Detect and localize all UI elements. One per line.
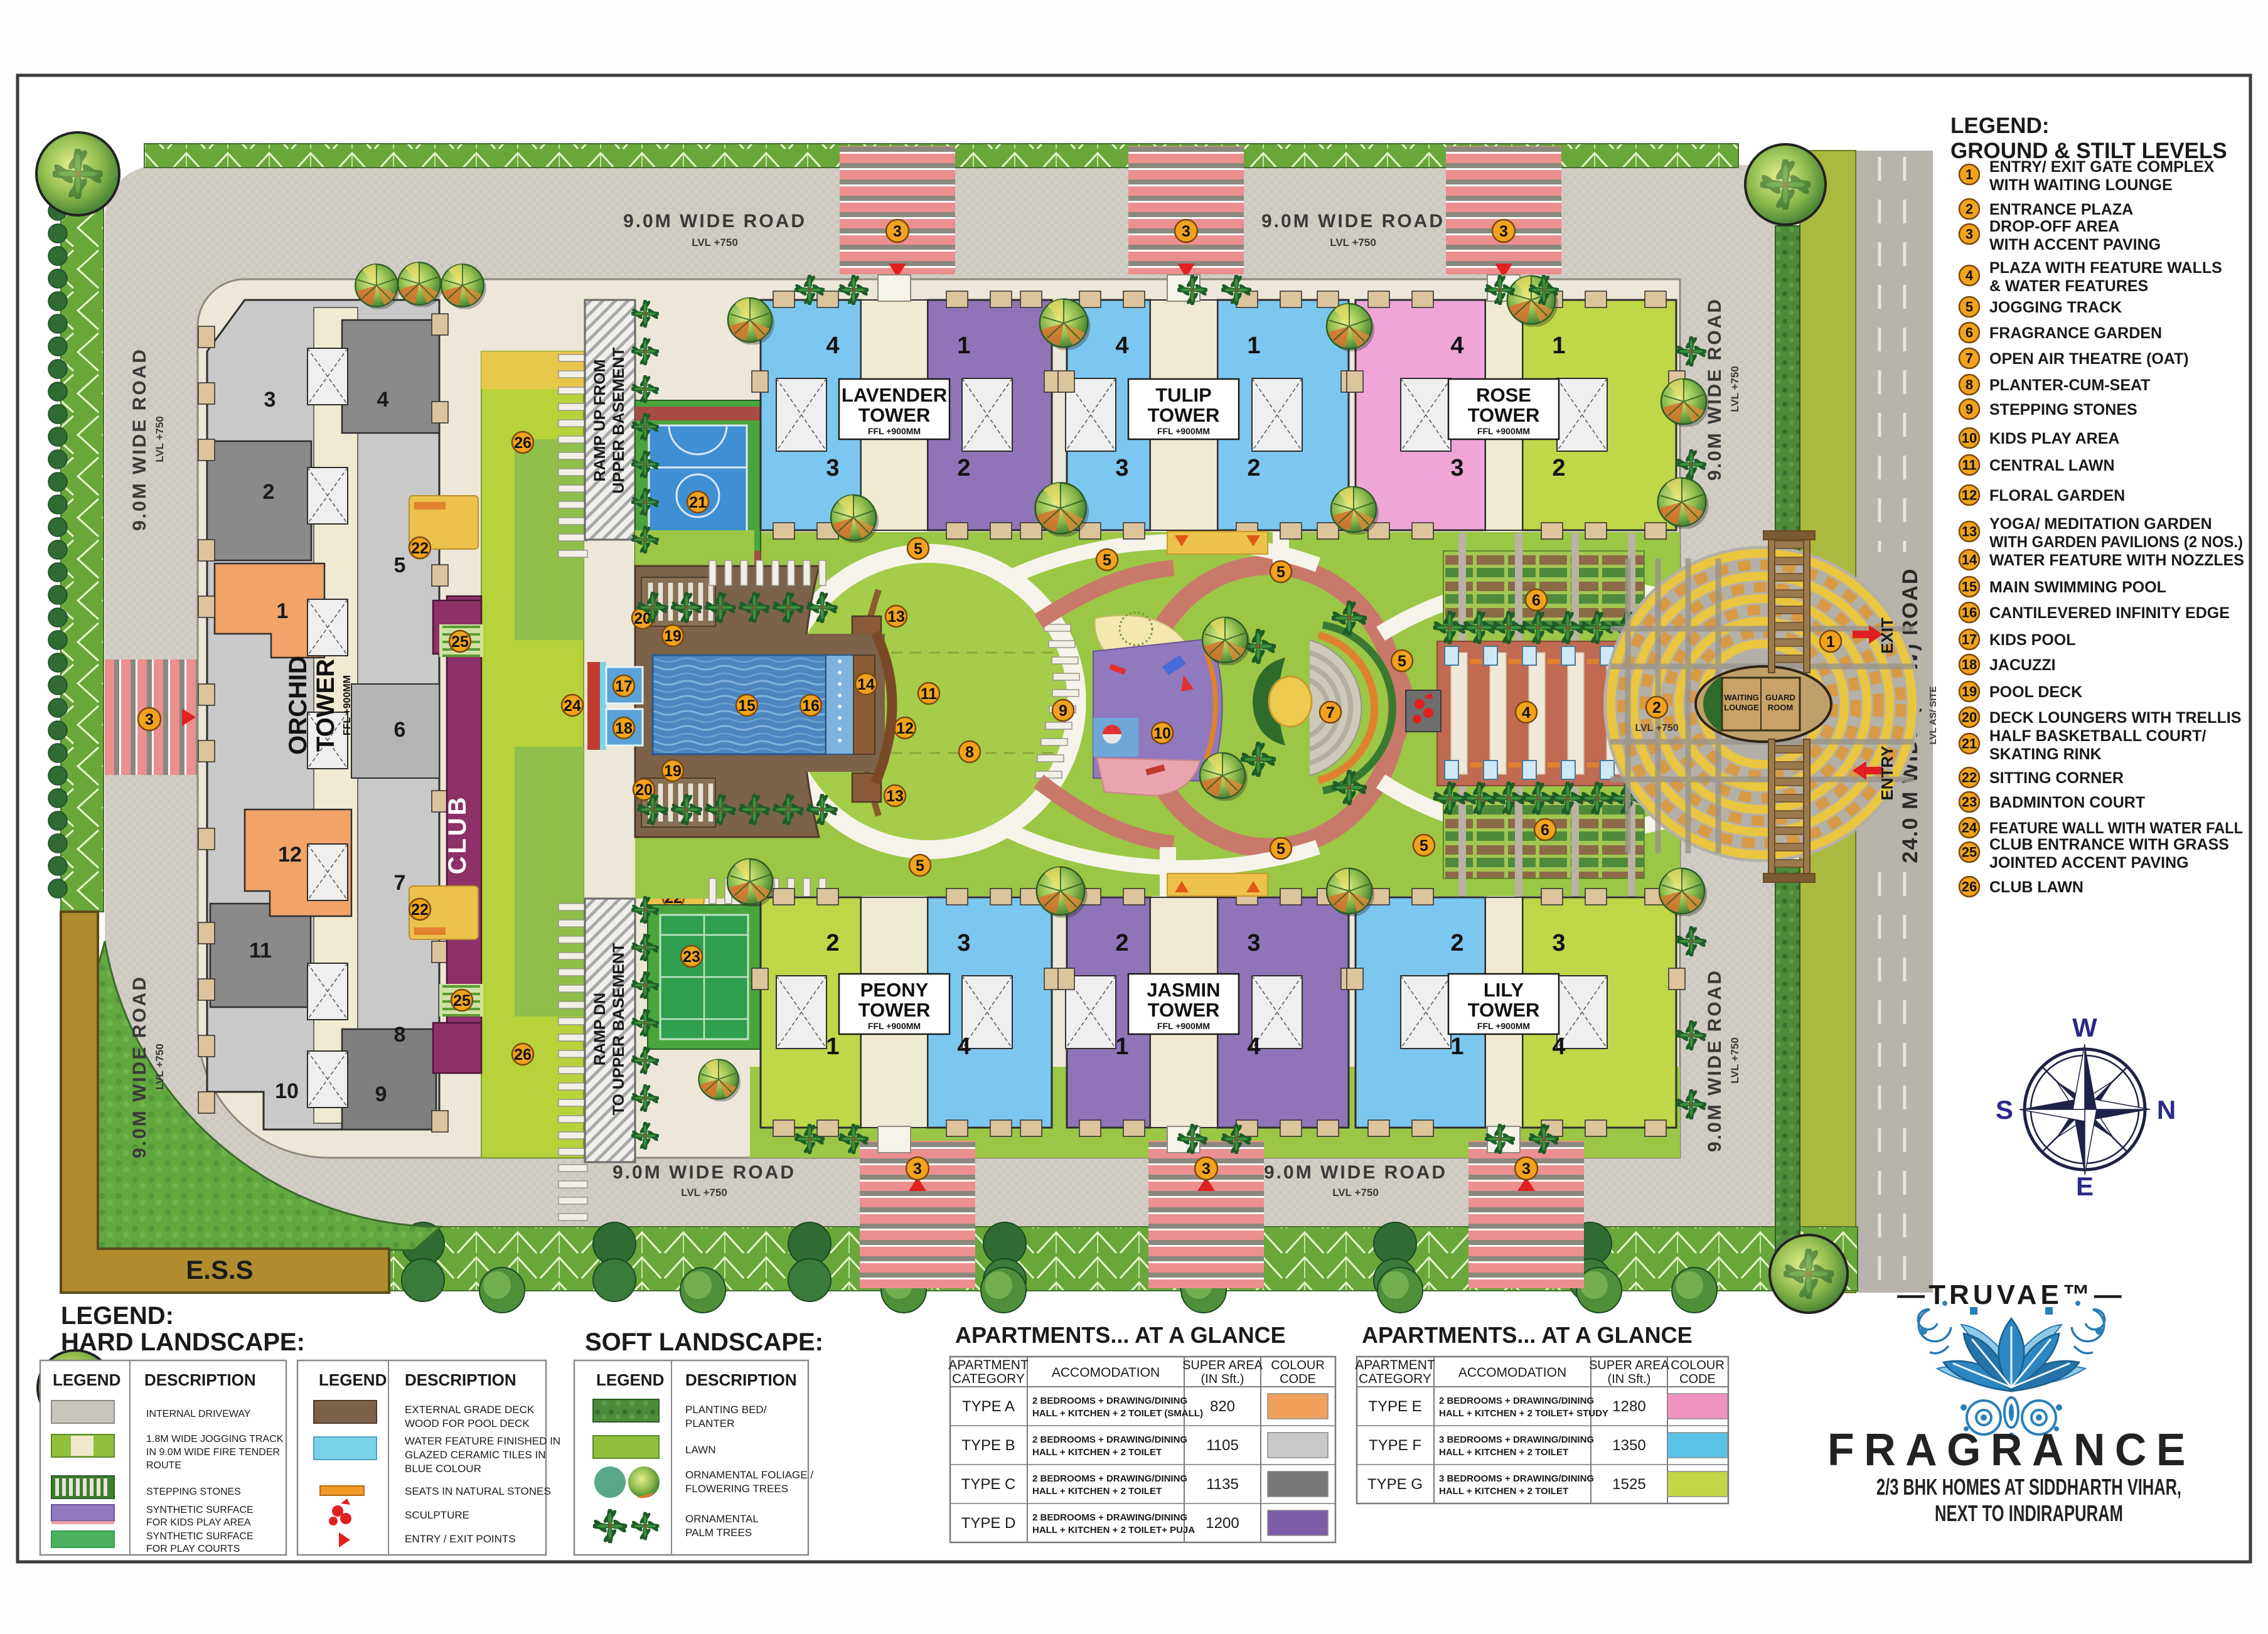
svg-text:ENTRY / EXIT POINTS: ENTRY / EXIT POINTS	[405, 1533, 516, 1545]
svg-text:TYPE G: TYPE G	[1367, 1476, 1423, 1493]
svg-text:HALL + KITCHEN + 2 TOILET+ PUJ: HALL + KITCHEN + 2 TOILET+ PUJA	[1032, 1525, 1195, 1535]
svg-text:2 BEDROOMS + DRAWING/DINING: 2 BEDROOMS + DRAWING/DINING	[1032, 1512, 1187, 1523]
svg-text:FOR PLAY COURTS: FOR PLAY COURTS	[146, 1544, 240, 1554]
svg-text:25: 25	[453, 992, 471, 1010]
svg-text:WATER FEATURE WITH NOZZLES: WATER FEATURE WITH NOZZLES	[1989, 552, 2244, 569]
svg-text:3: 3	[1499, 223, 1508, 240]
svg-text:4: 4	[1966, 268, 1974, 284]
svg-text:16: 16	[802, 697, 820, 715]
svg-text:WATER FEATURE FINISHED IN: WATER FEATURE FINISHED IN	[405, 1435, 560, 1447]
svg-text:5: 5	[1398, 653, 1406, 670]
svg-text:1: 1	[1826, 633, 1835, 651]
svg-text:9.0M WIDE ROAD: 9.0M WIDE ROAD	[129, 975, 150, 1158]
svg-text:11: 11	[1962, 457, 1976, 473]
svg-text:(IN Sft.): (IN Sft.)	[1608, 1372, 1651, 1386]
svg-text:TYPE E: TYPE E	[1368, 1398, 1421, 1415]
svg-text:23: 23	[1962, 794, 1977, 810]
svg-text:13: 13	[887, 608, 905, 626]
svg-text:EXIT: EXIT	[1878, 617, 1896, 654]
svg-text:JOINTED ACCENT PAVING: JOINTED ACCENT PAVING	[1989, 854, 2189, 872]
svg-text:4: 4	[1450, 333, 1463, 359]
svg-text:3: 3	[1450, 455, 1463, 481]
svg-text:HALF BASKETBALL COURT/: HALF BASKETBALL COURT/	[1989, 727, 2206, 745]
svg-text:3: 3	[264, 388, 276, 412]
svg-text:WOOD FOR POOL DECK: WOOD FOR POOL DECK	[405, 1418, 530, 1429]
svg-text:LVL +750: LVL +750	[692, 237, 738, 248]
svg-text:12: 12	[1962, 488, 1977, 503]
svg-text:1200: 1200	[1206, 1515, 1239, 1532]
svg-text:FFL +900MM: FFL +900MM	[1157, 1021, 1210, 1031]
svg-text:18: 18	[615, 720, 633, 737]
svg-text:GLAZED CERAMIC TILES IN: GLAZED CERAMIC TILES IN	[405, 1449, 546, 1461]
svg-text:S: S	[1996, 1095, 2013, 1124]
svg-text:SOFT LANDSCAPE:: SOFT LANDSCAPE:	[585, 1328, 823, 1356]
svg-text:TULIP: TULIP	[1155, 384, 1212, 406]
svg-text:2: 2	[826, 930, 839, 956]
svg-text:2: 2	[1966, 201, 1973, 217]
svg-text:22: 22	[1962, 770, 1977, 786]
svg-text:ROSE: ROSE	[1476, 384, 1531, 406]
svg-text:LAVENDER: LAVENDER	[842, 384, 947, 406]
svg-text:25: 25	[451, 633, 469, 651]
svg-text:CATEGORY: CATEGORY	[1359, 1372, 1431, 1386]
svg-text:2: 2	[957, 455, 970, 481]
svg-text:3: 3	[826, 455, 839, 481]
svg-text:2: 2	[1450, 930, 1463, 956]
svg-text:LVL AS/ SITE: LVL AS/ SITE	[1928, 686, 1939, 744]
svg-text:3: 3	[913, 1160, 922, 1178]
svg-text:HALL + KITCHEN + 2 TOILET: HALL + KITCHEN + 2 TOILET	[1032, 1486, 1162, 1497]
svg-text:ROOM: ROOM	[1768, 703, 1793, 712]
svg-text:5: 5	[394, 553, 406, 577]
svg-text:CANTILEVERED INFINITY EDGE: CANTILEVERED INFINITY EDGE	[1989, 604, 2230, 622]
svg-text:4: 4	[826, 333, 839, 359]
svg-text:HARD LANDSCAPE:: HARD LANDSCAPE:	[61, 1328, 305, 1356]
svg-text:12: 12	[896, 720, 914, 737]
svg-text:8: 8	[394, 1023, 406, 1047]
svg-text:10: 10	[1153, 725, 1171, 742]
svg-text:7: 7	[1966, 351, 1973, 366]
svg-text:NEXT TO INDIRAPURAM: NEXT TO INDIRAPURAM	[1935, 1500, 2123, 1526]
svg-text:MAIN SWIMMING POOL: MAIN SWIMMING POOL	[1989, 579, 2166, 596]
svg-text:2: 2	[1652, 699, 1661, 717]
svg-text:2/3 BHK HOMES AT SIDDHARTH VIH: 2/3 BHK HOMES AT SIDDHARTH VIHAR,	[1876, 1474, 2181, 1500]
svg-text:4: 4	[1522, 704, 1531, 722]
svg-text:4: 4	[1552, 1033, 1565, 1060]
svg-text:APARTMENTS... AT A GLANCE: APARTMENTS... AT A GLANCE	[1362, 1322, 1693, 1348]
svg-text:ENTRANCE PLAZA: ENTRANCE PLAZA	[1989, 201, 2133, 218]
svg-text:TOWER: TOWER	[1148, 404, 1220, 426]
svg-text:GUARD: GUARD	[1765, 693, 1795, 702]
svg-text:20: 20	[635, 781, 653, 799]
svg-text:1: 1	[1247, 333, 1260, 359]
svg-text:ORCHID: ORCHID	[284, 656, 312, 755]
svg-text:19: 19	[664, 627, 682, 645]
svg-text:8: 8	[965, 744, 974, 761]
svg-text:ORNAMENTAL FOLIAGE /: ORNAMENTAL FOLIAGE /	[685, 1469, 813, 1481]
svg-text:1525: 1525	[1612, 1476, 1645, 1493]
svg-text:FFL +900MM: FFL +900MM	[1157, 426, 1210, 436]
svg-text:9.0M WIDE ROAD: 9.0M WIDE ROAD	[1261, 211, 1445, 232]
svg-text:E.S.S: E.S.S	[186, 1255, 253, 1284]
svg-text:POOL DECK: POOL DECK	[1989, 683, 2082, 701]
svg-text:1105: 1105	[1206, 1437, 1239, 1454]
svg-text:TYPE F: TYPE F	[1369, 1437, 1421, 1454]
svg-text:4: 4	[1115, 333, 1128, 359]
svg-text:ENTRY/ EXIT GATE COMPLEX: ENTRY/ EXIT GATE COMPLEX	[1989, 158, 2215, 176]
svg-text:9: 9	[1966, 402, 1973, 417]
svg-text:WITH GARDEN PAVILIONS (2 NOS.): WITH GARDEN PAVILIONS (2 NOS.)	[1989, 533, 2243, 551]
svg-text:LVL +750: LVL +750	[1330, 237, 1376, 248]
svg-text:CENTRAL LAWN: CENTRAL LAWN	[1989, 457, 2115, 474]
svg-text:FRAGRANCE: FRAGRANCE	[1827, 1425, 2195, 1475]
svg-text:SUPER AREA: SUPER AREA	[1182, 1359, 1263, 1372]
svg-text:LVL +750: LVL +750	[1729, 366, 1741, 412]
svg-text:STEPPING STONES: STEPPING STONES	[146, 1487, 241, 1497]
svg-text:FFL +900MM: FFL +900MM	[342, 675, 353, 735]
svg-text:9.0M WIDE ROAD: 9.0M WIDE ROAD	[1264, 1162, 1447, 1183]
svg-text:TOWER: TOWER	[1148, 999, 1220, 1021]
svg-text:26: 26	[514, 1046, 532, 1064]
svg-text:14: 14	[1962, 552, 1977, 568]
svg-text:STEPPING STONES: STEPPING STONES	[1989, 401, 2137, 419]
svg-text:WITH WAITING LOUNGE: WITH WAITING LOUNGE	[1989, 176, 2173, 194]
svg-text:(IN Sft.): (IN Sft.)	[1201, 1372, 1244, 1386]
svg-text:E: E	[2076, 1172, 2094, 1201]
svg-text:LVL +750: LVL +750	[681, 1187, 727, 1199]
svg-text:CODE: CODE	[1280, 1372, 1316, 1386]
svg-text:WITH ACCENT PAVING: WITH ACCENT PAVING	[1989, 236, 2161, 254]
svg-text:14: 14	[857, 676, 875, 693]
svg-text:1350: 1350	[1612, 1437, 1645, 1454]
svg-text:TYPE A: TYPE A	[962, 1398, 1015, 1415]
svg-text:10: 10	[1962, 430, 1977, 446]
svg-text:22: 22	[411, 901, 429, 919]
svg-text:2 BEDROOMS + DRAWING/DINING: 2 BEDROOMS + DRAWING/DINING	[1439, 1396, 1594, 1406]
svg-text:TO UPPER BASEMENT: TO UPPER BASEMENT	[610, 943, 628, 1116]
svg-text:PLAZA WITH FEATURE WALLS: PLAZA WITH FEATURE WALLS	[1989, 259, 2222, 277]
svg-text:LVL +750: LVL +750	[1635, 723, 1678, 734]
svg-text:HALL + KITCHEN + 2 TOILET: HALL + KITCHEN + 2 TOILET	[1439, 1486, 1568, 1497]
svg-text:11: 11	[249, 939, 272, 963]
svg-text:JOGGING TRACK: JOGGING TRACK	[1989, 299, 2122, 316]
svg-text:ENTRY: ENTRY	[1878, 745, 1896, 800]
svg-text:TYPE D: TYPE D	[961, 1515, 1016, 1532]
svg-text:11: 11	[921, 685, 938, 703]
svg-text:16: 16	[1962, 605, 1977, 621]
svg-text:1.8M WIDE JOGGING TRACK: 1.8M WIDE JOGGING TRACK	[146, 1434, 284, 1444]
svg-text:FFL +900MM: FFL +900MM	[1477, 1021, 1530, 1031]
svg-text:DESCRIPTION: DESCRIPTION	[685, 1370, 797, 1389]
svg-text:COLOUR: COLOUR	[1671, 1359, 1725, 1372]
svg-text:SKATING RINK: SKATING RINK	[1989, 745, 2102, 763]
svg-text:3: 3	[1247, 930, 1260, 956]
svg-text:10: 10	[275, 1079, 299, 1103]
svg-text:SCULPTURE: SCULPTURE	[405, 1509, 469, 1521]
svg-text:5: 5	[1420, 837, 1428, 855]
svg-text:WAITING: WAITING	[1724, 693, 1759, 702]
svg-text:ACCOMODATION: ACCOMODATION	[1458, 1365, 1566, 1380]
svg-text:1: 1	[826, 1033, 839, 1060]
svg-text:3: 3	[957, 930, 970, 956]
svg-text:2: 2	[1247, 455, 1260, 481]
svg-text:1: 1	[1450, 1033, 1463, 1060]
svg-text:TOWER: TOWER	[1468, 404, 1540, 426]
svg-text:20: 20	[1962, 710, 1977, 725]
svg-text:7: 7	[1326, 704, 1335, 722]
svg-text:HALL + KITCHEN + 2 TOILET+ ST: HALL + KITCHEN + 2 TOILET+ STUDY	[1439, 1408, 1608, 1419]
svg-text:SYNTHETIC SURFACE: SYNTHETIC SURFACE	[146, 1505, 254, 1515]
svg-text:25: 25	[1962, 845, 1977, 860]
svg-text:2 BEDROOMS + DRAWING/DINING: 2 BEDROOMS + DRAWING/DINING	[1032, 1473, 1187, 1484]
svg-text:9.0M WIDE ROAD: 9.0M WIDE ROAD	[1704, 297, 1725, 481]
svg-text:2: 2	[1115, 930, 1128, 956]
svg-text:3: 3	[1115, 455, 1128, 481]
svg-text:6: 6	[394, 718, 406, 742]
svg-text:DROP-OFF AREA: DROP-OFF AREA	[1989, 218, 2119, 235]
svg-text:PLANTER-CUM-SEAT: PLANTER-CUM-SEAT	[1989, 376, 2150, 394]
svg-text:LOUNGE: LOUNGE	[1724, 703, 1759, 712]
svg-text:5: 5	[1276, 563, 1285, 581]
svg-text:DESCRIPTION: DESCRIPTION	[144, 1370, 256, 1389]
svg-text:LEGEND:: LEGEND:	[61, 1302, 174, 1330]
svg-text:24: 24	[1962, 820, 1977, 836]
svg-text:1: 1	[1115, 1033, 1128, 1060]
svg-text:LILY: LILY	[1484, 979, 1524, 1001]
svg-text:APARTMENT: APARTMENT	[1355, 1358, 1435, 1372]
svg-text:HALL + KITCHEN + 2 TOILET: HALL + KITCHEN + 2 TOILET	[1439, 1447, 1568, 1458]
svg-text:LVL +750: LVL +750	[154, 1044, 166, 1090]
svg-text:INTERNAL DRIVEWAY: INTERNAL DRIVEWAY	[146, 1409, 251, 1419]
svg-text:LVL +750: LVL +750	[154, 416, 166, 462]
svg-text:1: 1	[1552, 333, 1565, 359]
svg-text:3: 3	[893, 223, 902, 240]
svg-text:24: 24	[564, 697, 581, 715]
svg-text:IN 9.0M WIDE FIRE TENDER: IN 9.0M WIDE FIRE TENDER	[146, 1447, 280, 1458]
svg-text:BADMINTON COURT: BADMINTON COURT	[1989, 794, 2145, 811]
svg-text:4: 4	[1247, 1033, 1260, 1060]
svg-text:SEATS IN NATURAL STONES: SEATS IN NATURAL STONES	[405, 1485, 551, 1497]
svg-text:13: 13	[886, 788, 904, 805]
svg-text:COLOUR: COLOUR	[1271, 1359, 1325, 1372]
svg-text:5: 5	[916, 857, 924, 875]
svg-text:N: N	[2157, 1095, 2176, 1124]
svg-text:15: 15	[1962, 579, 1977, 595]
svg-text:FRAGRANCE GARDEN: FRAGRANCE GARDEN	[1989, 324, 2162, 342]
svg-text:2 BEDROOMS + DRAWING/DINING: 2 BEDROOMS + DRAWING/DINING	[1032, 1434, 1187, 1445]
svg-text:26: 26	[514, 434, 532, 452]
svg-text:23: 23	[683, 948, 700, 966]
svg-text:HALL + KITCHEN + 2 TOILET (SMA: HALL + KITCHEN + 2 TOILET (SMALL)	[1032, 1408, 1203, 1419]
svg-text:9.0M WIDE ROAD: 9.0M WIDE ROAD	[1704, 969, 1725, 1152]
svg-text:9.0M WIDE ROAD: 9.0M WIDE ROAD	[612, 1162, 796, 1183]
svg-text:SUPER AREA: SUPER AREA	[1589, 1359, 1669, 1372]
svg-text:FLOWERING TREES: FLOWERING TREES	[685, 1483, 788, 1495]
svg-text:LVL +750: LVL +750	[1729, 1037, 1741, 1084]
svg-text:12: 12	[278, 843, 302, 867]
svg-text:17: 17	[615, 678, 633, 695]
svg-text:6: 6	[1541, 821, 1549, 839]
svg-text:7: 7	[394, 871, 406, 895]
svg-text:ACCOMODATION: ACCOMODATION	[1052, 1365, 1160, 1380]
svg-text:DECK LOUNGERS WITH TRELLIS: DECK LOUNGERS WITH TRELLIS	[1989, 709, 2241, 727]
svg-text:22: 22	[411, 540, 429, 557]
svg-text:PALM TREES: PALM TREES	[685, 1527, 752, 1539]
svg-text:LVL +750: LVL +750	[1332, 1187, 1379, 1199]
svg-text:3: 3	[1966, 227, 1973, 242]
svg-text:5: 5	[914, 540, 923, 558]
svg-text:21: 21	[689, 494, 707, 511]
svg-text:SITTING CORNER: SITTING CORNER	[1989, 769, 2124, 787]
svg-text:CLUB: CLUB	[444, 794, 471, 874]
svg-text:TOWER: TOWER	[312, 659, 340, 752]
svg-text:PLANTER: PLANTER	[685, 1418, 734, 1429]
svg-text:FOR KIDS PLAY AREA: FOR KIDS PLAY AREA	[146, 1517, 251, 1528]
svg-text:8: 8	[1966, 377, 1973, 393]
svg-text:2 BEDROOMS + DRAWING/DINING: 2 BEDROOMS + DRAWING/DINING	[1032, 1396, 1187, 1406]
svg-text:BLUE COLOUR: BLUE COLOUR	[405, 1463, 481, 1475]
svg-text:9: 9	[375, 1082, 387, 1106]
svg-text:13: 13	[1962, 524, 1977, 540]
svg-text:19: 19	[1962, 684, 1977, 700]
svg-text:TOWER: TOWER	[859, 404, 931, 426]
svg-text:TOWER: TOWER	[1468, 999, 1540, 1021]
svg-text:CLUB LAWN: CLUB LAWN	[1989, 878, 2083, 896]
svg-text:21: 21	[1962, 736, 1977, 752]
svg-text:—TRUVAE™—: —TRUVAE™—	[1897, 1279, 2126, 1310]
svg-text:OPEN AIR THEATRE (OAT): OPEN AIR THEATRE (OAT)	[1989, 350, 2189, 368]
svg-text:UPPER BASEMENT: UPPER BASEMENT	[610, 347, 628, 493]
svg-text:820: 820	[1210, 1398, 1235, 1415]
svg-text:FFL +900MM: FFL +900MM	[868, 426, 921, 436]
svg-text:LEGEND: LEGEND	[596, 1370, 664, 1389]
svg-text:W: W	[2072, 1013, 2097, 1042]
svg-text:1: 1	[1966, 167, 1973, 183]
svg-text:LAWN: LAWN	[685, 1444, 716, 1456]
svg-text:JASMIN: JASMIN	[1147, 979, 1220, 1001]
svg-text:TYPE B: TYPE B	[961, 1437, 1015, 1454]
svg-text:3: 3	[1182, 223, 1190, 240]
svg-text:ROUTE: ROUTE	[146, 1460, 181, 1471]
svg-text:ORNAMENTAL: ORNAMENTAL	[685, 1513, 759, 1525]
svg-text:FFL +900MM: FFL +900MM	[868, 1021, 921, 1031]
svg-text:3 BEDROOMS + DRAWING/DINING: 3 BEDROOMS + DRAWING/DINING	[1439, 1473, 1594, 1484]
svg-text:3 BEDROOMS + DRAWING/DINING: 3 BEDROOMS + DRAWING/DINING	[1439, 1434, 1594, 1445]
svg-text:TYPE C: TYPE C	[961, 1476, 1016, 1493]
svg-text:2: 2	[1552, 455, 1565, 481]
svg-text:18: 18	[1962, 657, 1977, 673]
svg-text:JACUZZI: JACUZZI	[1989, 656, 2056, 674]
svg-text:RAMP UP FROM: RAMP UP FROM	[591, 360, 609, 482]
svg-text:FLORAL GARDEN: FLORAL GARDEN	[1989, 487, 2125, 505]
svg-text:3: 3	[1552, 930, 1565, 956]
svg-text:1: 1	[277, 599, 289, 623]
svg-text:CATEGORY: CATEGORY	[952, 1372, 1025, 1386]
svg-text:5: 5	[1966, 299, 1973, 315]
svg-text:FFL +900MM: FFL +900MM	[1477, 426, 1530, 436]
svg-text:KIDS PLAY AREA: KIDS PLAY AREA	[1989, 430, 2119, 447]
svg-text:6: 6	[1532, 592, 1541, 609]
svg-text:3: 3	[1202, 1160, 1211, 1178]
svg-text:SYNTHETIC SURFACE: SYNTHETIC SURFACE	[146, 1531, 254, 1542]
svg-text:& WATER FEATURES: & WATER FEATURES	[1989, 277, 2148, 295]
svg-text:3: 3	[145, 711, 154, 729]
svg-text:1280: 1280	[1612, 1398, 1645, 1415]
svg-text:APARTMENT: APARTMENT	[948, 1358, 1029, 1372]
svg-text:YOGA/ MEDITATION GARDEN: YOGA/ MEDITATION GARDEN	[1989, 515, 2212, 533]
svg-text:LEGEND: LEGEND	[53, 1370, 120, 1389]
svg-text:LEGEND: LEGEND	[319, 1370, 387, 1389]
svg-text:DESCRIPTION: DESCRIPTION	[405, 1370, 516, 1389]
svg-text:9: 9	[1059, 702, 1067, 720]
svg-text:PEONY: PEONY	[860, 979, 929, 1001]
svg-text:26: 26	[1962, 879, 1977, 895]
svg-text:5: 5	[1276, 840, 1285, 858]
svg-text:1135: 1135	[1206, 1476, 1239, 1493]
svg-text:9.0M WIDE ROAD: 9.0M WIDE ROAD	[129, 348, 150, 531]
svg-text:2: 2	[263, 480, 275, 504]
svg-text:KIDS POOL: KIDS POOL	[1989, 631, 2076, 649]
svg-text:TOWER: TOWER	[859, 999, 931, 1021]
svg-text:APARTMENTS... AT A GLANCE: APARTMENTS... AT A GLANCE	[955, 1322, 1286, 1348]
svg-text:RAMP DN: RAMP DN	[591, 993, 609, 1065]
svg-text:3: 3	[1522, 1160, 1531, 1178]
svg-text:4: 4	[377, 388, 389, 412]
svg-text:17: 17	[1962, 632, 1977, 648]
svg-text:LEGEND:: LEGEND:	[1950, 114, 2050, 138]
svg-text:5: 5	[1103, 552, 1111, 569]
svg-text:CLUB ENTRANCE WITH GRASS: CLUB ENTRANCE WITH GRASS	[1989, 836, 2229, 853]
svg-text:FEATURE WALL WITH WATER FALL: FEATURE WALL WITH WATER FALL	[1989, 820, 2243, 837]
svg-text:9.0M WIDE ROAD: 9.0M WIDE ROAD	[623, 211, 806, 232]
svg-text:19: 19	[664, 762, 682, 780]
svg-text:4: 4	[957, 1033, 970, 1060]
svg-text:15: 15	[738, 697, 756, 715]
svg-text:CODE: CODE	[1679, 1372, 1716, 1386]
svg-text:PLANTING BED/: PLANTING BED/	[685, 1404, 767, 1416]
svg-text:6: 6	[1966, 325, 1973, 341]
svg-text:HALL + KITCHEN + 2 TOILET: HALL + KITCHEN + 2 TOILET	[1032, 1447, 1162, 1458]
svg-text:1: 1	[957, 333, 970, 359]
svg-text:EXTERNAL GRADE DECK: EXTERNAL GRADE DECK	[405, 1404, 535, 1416]
